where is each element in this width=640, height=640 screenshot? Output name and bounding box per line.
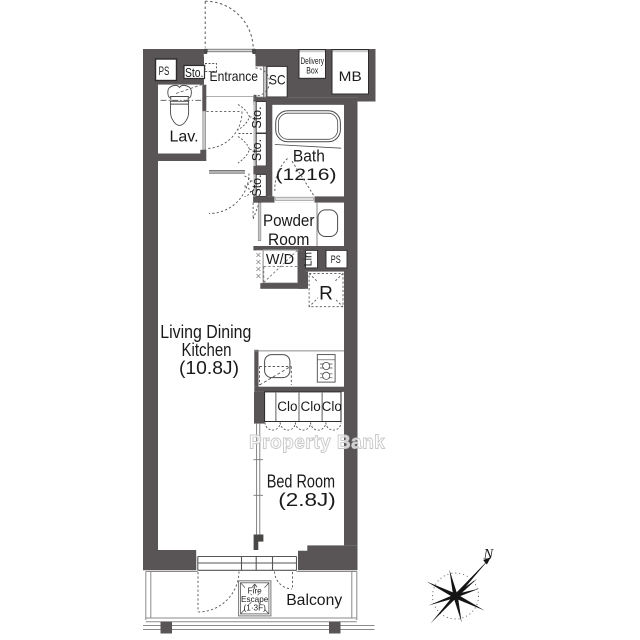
svg-text:Balcony: Balcony [286,592,342,609]
svg-text:Living Dining: Living Dining [160,322,251,342]
svg-text:W/D: W/D [266,252,294,268]
svg-text:(1216): (1216) [276,165,337,184]
svg-text:Kitchen: Kitchen [182,340,232,360]
svg-text:Box: Box [306,66,318,77]
svg-text:(10.8J): (10.8J) [179,358,239,378]
svg-text:(1·3F): (1·3F) [244,604,267,613]
svg-text:Powder: Powder [263,212,315,230]
svg-text:Bed Room: Bed Room [267,472,335,492]
svg-text:Lin: Lin [302,252,314,266]
svg-text:MB: MB [339,68,362,84]
svg-text:PS: PS [159,64,170,78]
svg-text:Clo: Clo [322,399,342,414]
svg-text:SC: SC [269,71,286,87]
svg-text:Escape: Escape [241,595,269,604]
svg-text:N: N [483,547,495,563]
svg-text:Clo: Clo [300,399,320,414]
svg-text:(2.8J): (2.8J) [278,490,336,510]
svg-text:Clo: Clo [277,399,297,414]
svg-text:Entrance: Entrance [210,68,259,84]
svg-text:Sto.: Sto. [250,139,264,161]
svg-text:Sto.: Sto. [250,174,264,196]
svg-text:PS: PS [331,254,341,266]
svg-text:Bath: Bath [293,146,325,165]
svg-text:Property Bank: Property Bank [249,433,385,454]
svg-text:Sto.: Sto. [250,106,264,128]
svg-text:Sto.: Sto. [185,66,204,80]
svg-text:Lav.: Lav. [169,129,198,146]
svg-text:R: R [319,284,333,305]
